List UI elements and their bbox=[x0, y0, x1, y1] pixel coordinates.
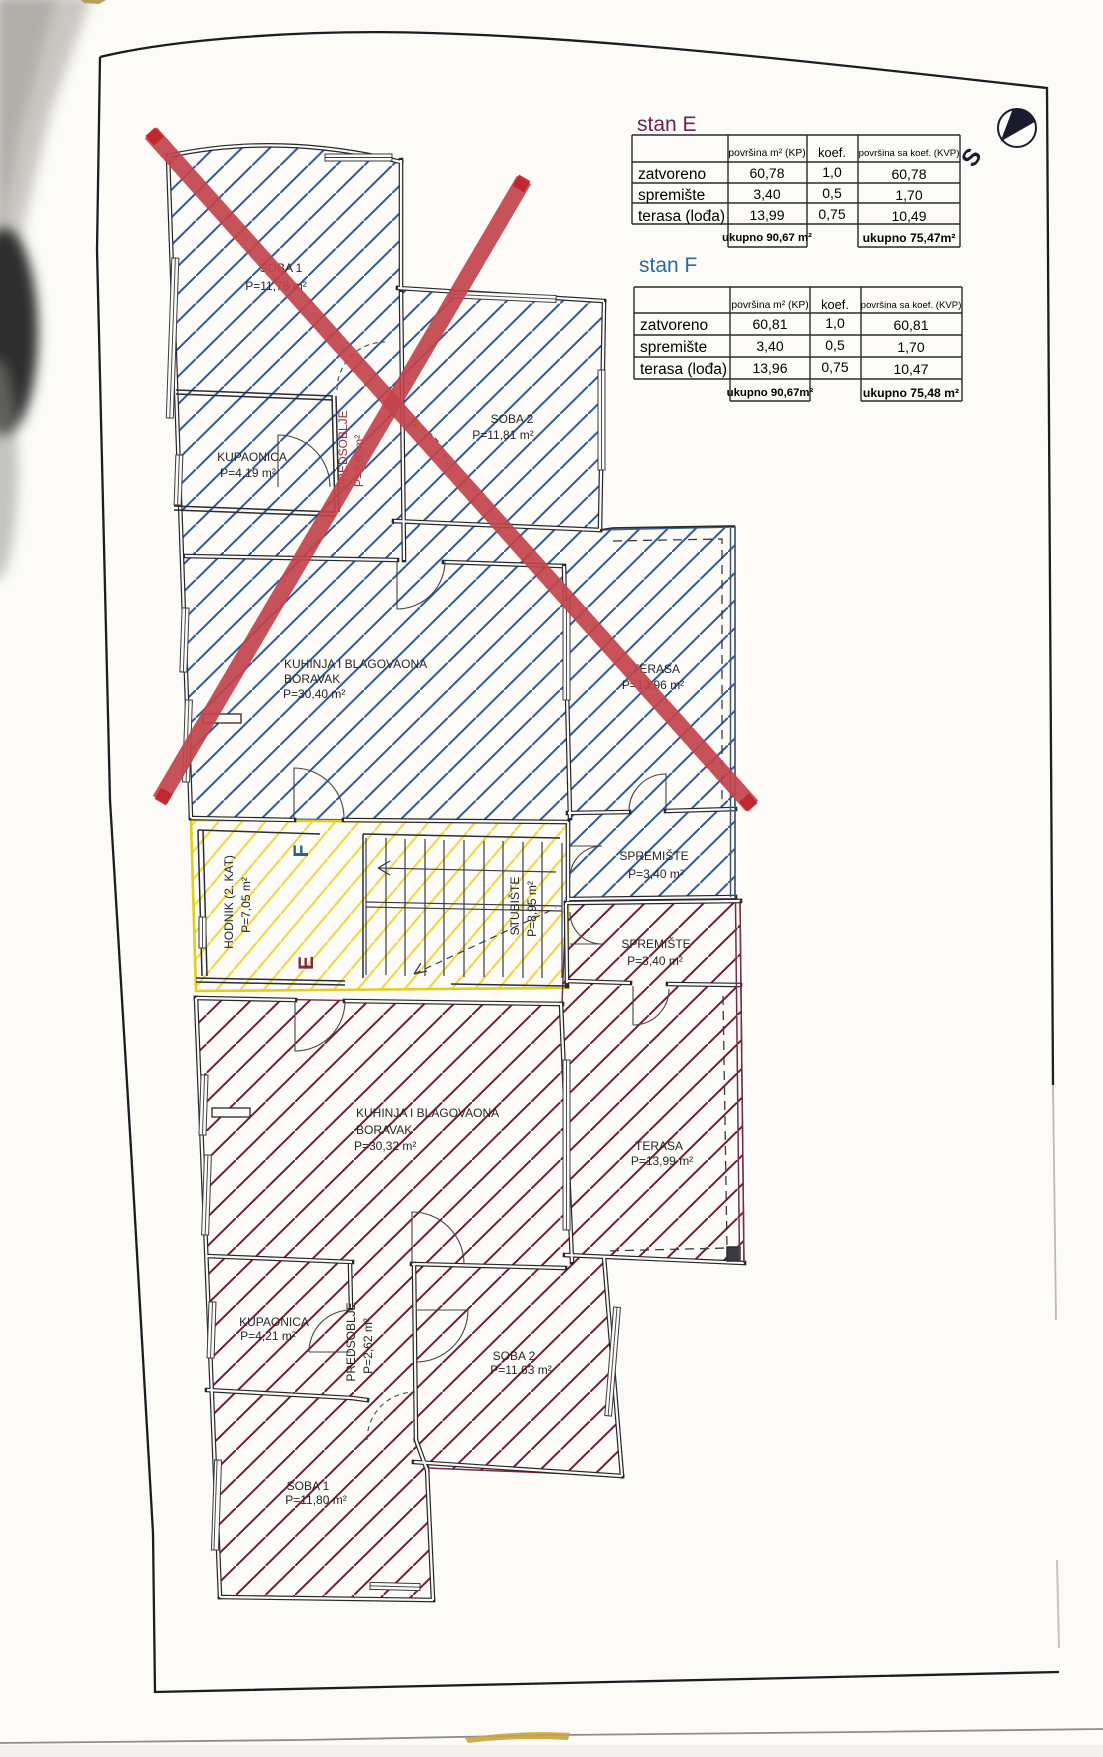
svg-text:SOBA 2: SOBA 2 bbox=[493, 1349, 536, 1363]
svg-text:P=4,21 m²: P=4,21 m² bbox=[240, 1329, 296, 1343]
svg-text:60,78: 60,78 bbox=[749, 165, 784, 181]
svg-text:F: F bbox=[290, 844, 313, 857]
svg-text:P=30,40 m²: P=30,40 m² bbox=[283, 687, 345, 701]
svg-text:koef.: koef. bbox=[821, 297, 849, 312]
svg-text:60,81: 60,81 bbox=[893, 317, 928, 333]
svg-text:HODNIK (2. KAT): HODNIK (2. KAT) bbox=[222, 855, 236, 949]
svg-text:ukupno 75,48 m²: ukupno 75,48 m² bbox=[863, 386, 959, 400]
svg-text:E: E bbox=[295, 956, 318, 970]
svg-text:zatvoreno: zatvoreno bbox=[640, 317, 708, 334]
svg-text:0,75: 0,75 bbox=[818, 206, 845, 222]
svg-text:SPREMIŠTE: SPREMIŠTE bbox=[619, 848, 688, 863]
svg-text:PREDSOBLJE: PREDSOBLJE bbox=[344, 1302, 358, 1381]
svg-text:BORAVAK: BORAVAK bbox=[284, 672, 340, 686]
svg-text:površina sa koef. (KVP): površina sa koef. (KVP) bbox=[861, 300, 962, 311]
svg-text:P=30,32 m²: P=30,32 m² bbox=[354, 1139, 416, 1153]
svg-text:1,0: 1,0 bbox=[825, 315, 845, 331]
svg-text:ukupno 90,67 m²: ukupno 90,67 m² bbox=[722, 232, 812, 244]
svg-text:P=13,99 m²: P=13,99 m² bbox=[631, 1154, 693, 1168]
svg-text:0,75: 0,75 bbox=[821, 359, 848, 375]
svg-text:KUHINJA I BLAGOVAONA: KUHINJA I BLAGOVAONA bbox=[356, 1106, 499, 1120]
svg-text:SPREMIŠTE: SPREMIŠTE bbox=[621, 936, 690, 951]
svg-text:BORAVAK: BORAVAK bbox=[356, 1123, 412, 1137]
svg-text:13,96: 13,96 bbox=[752, 360, 787, 376]
svg-text:P=3,40 m²: P=3,40 m² bbox=[628, 867, 684, 881]
svg-text:terasa (lođa): terasa (lođa) bbox=[640, 361, 727, 378]
svg-text:koef.: koef. bbox=[818, 145, 846, 160]
svg-text:zatvoreno: zatvoreno bbox=[638, 166, 706, 183]
svg-text:0,5: 0,5 bbox=[825, 337, 845, 353]
svg-text:spremište: spremište bbox=[638, 187, 705, 204]
svg-text:P=7,05 m²: P=7,05 m² bbox=[239, 877, 253, 933]
svg-text:P=8,95 m²: P=8,95 m² bbox=[525, 881, 539, 937]
svg-text:terasa (lođa): terasa (lođa) bbox=[638, 208, 725, 225]
svg-text:površina sa koef. (KVP): površina sa koef. (KVP) bbox=[859, 148, 960, 159]
svg-text:1,70: 1,70 bbox=[897, 339, 924, 355]
svg-text:13,99: 13,99 bbox=[749, 207, 784, 223]
svg-text:STUBIŠTE: STUBIŠTE bbox=[507, 877, 522, 936]
svg-text:površina m² (KP): površina m² (KP) bbox=[731, 300, 808, 311]
svg-text:stan E: stan E bbox=[637, 113, 697, 136]
svg-text:KUPAONICA: KUPAONICA bbox=[217, 450, 287, 464]
svg-text:TERASA: TERASA bbox=[635, 1139, 683, 1153]
svg-text:P=4,19 m²: P=4,19 m² bbox=[220, 466, 276, 480]
svg-text:SOBA 1: SOBA 1 bbox=[287, 1479, 330, 1493]
svg-text:P=3,40 m²: P=3,40 m² bbox=[627, 954, 683, 968]
svg-text:KUHINJA I BLAGOVAONA: KUHINJA I BLAGOVAONA bbox=[284, 657, 427, 671]
svg-text:60,78: 60,78 bbox=[891, 166, 926, 182]
svg-text:3,40: 3,40 bbox=[753, 186, 780, 202]
svg-text:P=2,62 m²: P=2,62 m² bbox=[361, 1318, 375, 1374]
svg-text:1,70: 1,70 bbox=[895, 187, 922, 203]
svg-text:P=11,80 m²: P=11,80 m² bbox=[285, 1493, 346, 1507]
svg-text:1,0: 1,0 bbox=[822, 164, 842, 180]
svg-text:10,49: 10,49 bbox=[891, 208, 926, 224]
svg-text:stan F: stan F bbox=[639, 254, 697, 277]
svg-text:3,40: 3,40 bbox=[756, 338, 783, 354]
svg-text:P=11,81 m²: P=11,81 m² bbox=[472, 428, 533, 442]
svg-text:0,5: 0,5 bbox=[822, 185, 842, 201]
svg-text:KUPAONICA: KUPAONICA bbox=[239, 1315, 309, 1329]
svg-text:ukupno 90,67m²: ukupno 90,67m² bbox=[727, 387, 814, 399]
svg-text:spremište: spremište bbox=[640, 339, 707, 356]
svg-text:ukupno 75,47m²: ukupno 75,47m² bbox=[863, 231, 956, 245]
svg-text:10,47: 10,47 bbox=[893, 361, 928, 377]
svg-text:P=11,63 m²: P=11,63 m² bbox=[490, 1363, 551, 1377]
svg-text:površina m² (KP): površina m² (KP) bbox=[728, 148, 805, 159]
svg-text:SOBA 2: SOBA 2 bbox=[491, 412, 534, 426]
svg-text:60,81: 60,81 bbox=[752, 316, 787, 332]
